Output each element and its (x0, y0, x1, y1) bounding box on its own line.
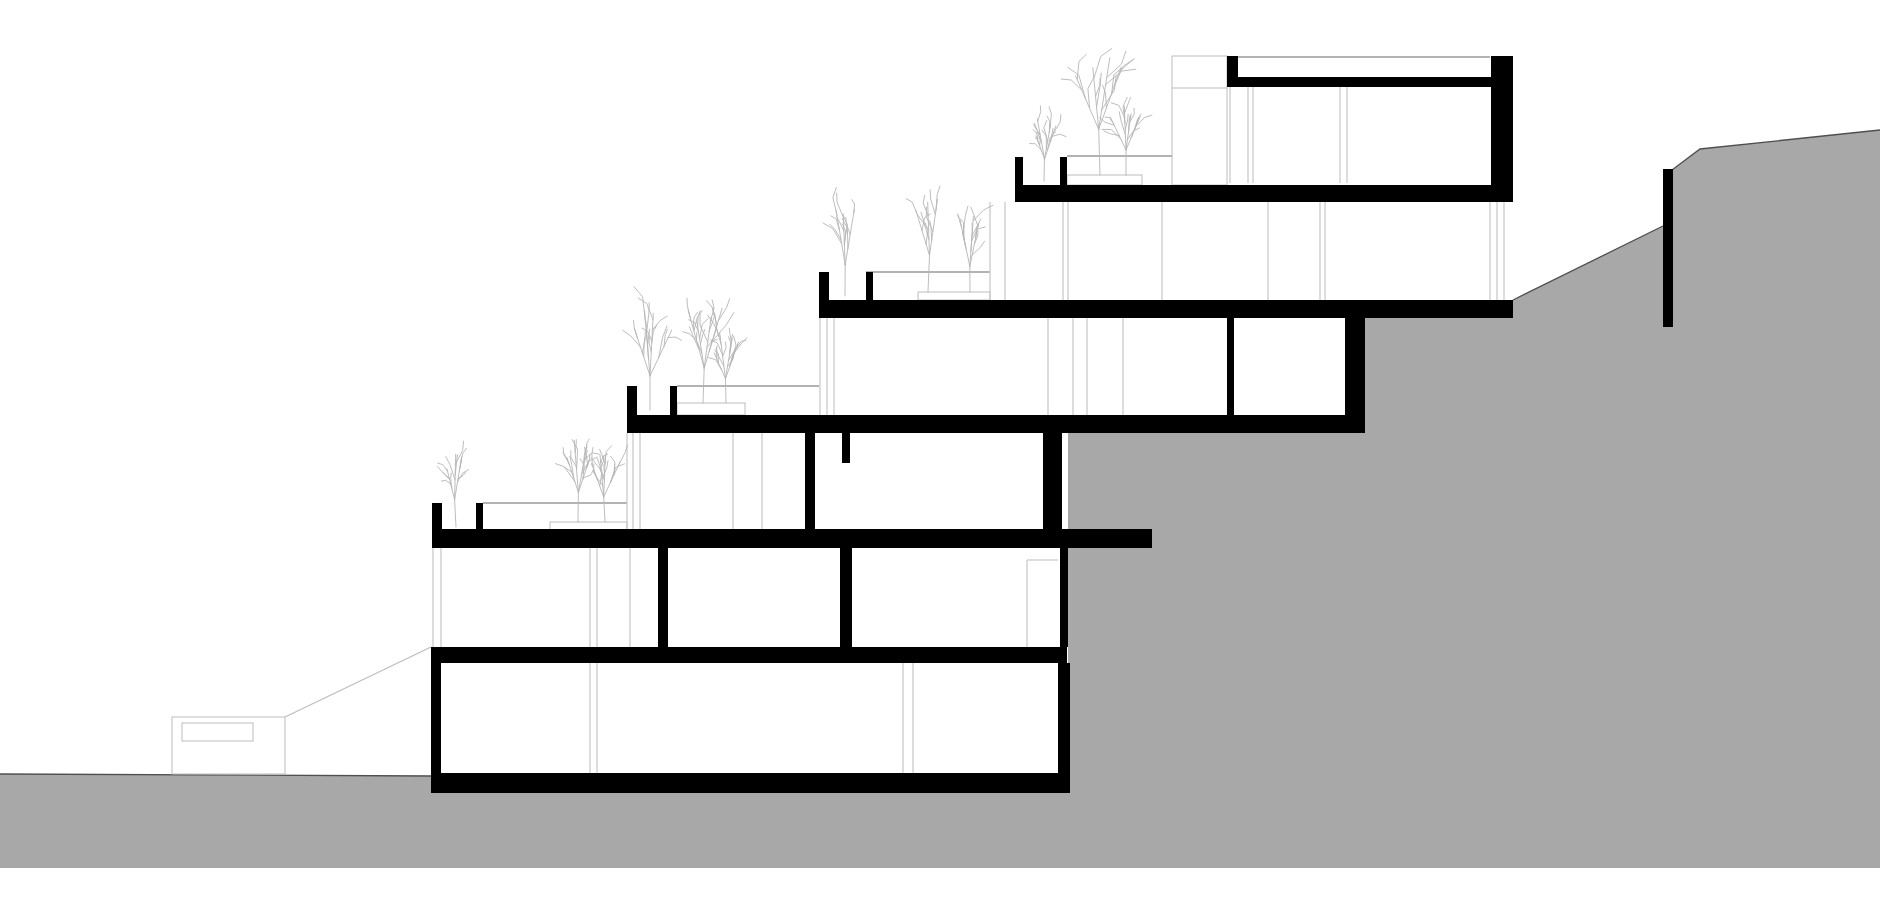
planting-bed-outline (550, 522, 627, 530)
level3-right-wall (1043, 433, 1062, 530)
stair-volume-outline (1172, 56, 1227, 185)
tree (683, 298, 734, 403)
slab-level-1 (1015, 185, 1513, 202)
tree (906, 186, 940, 292)
tree (958, 205, 993, 292)
tree (438, 441, 469, 527)
level2-right-wall (1345, 318, 1365, 415)
upper-unit-right-wall (1491, 56, 1513, 202)
level4-partition-wall-a (658, 548, 668, 647)
level3-beam (842, 433, 850, 463)
tree (708, 315, 747, 403)
ground-left-wall (431, 663, 441, 773)
planting-bed-outline (1067, 175, 1142, 185)
slab-level-2 (819, 300, 1513, 318)
tree (1100, 97, 1152, 175)
level2-partition-wall (1227, 318, 1234, 415)
planter-terrace-2-wall (866, 272, 873, 300)
planter-terrace-3-wall (627, 386, 637, 415)
planter-terrace-1-wall (1060, 157, 1067, 185)
planting-bed-outline (677, 403, 745, 415)
tree (591, 445, 627, 522)
slab-level-3 (627, 415, 1365, 433)
planter-terrace-1-wall (1015, 157, 1023, 185)
ground-right-wall (1058, 663, 1070, 773)
roof-parapet-stub (1227, 56, 1238, 87)
foundation-slab (431, 773, 1070, 793)
level4-right-wall (1060, 548, 1068, 647)
planter-terrace-3-wall (670, 386, 677, 415)
retaining-wall (1663, 169, 1673, 327)
slab-level-5 (431, 647, 1067, 663)
entrance-structure-outline (172, 717, 285, 774)
retaining-ramp-line (285, 647, 431, 717)
roof-slab (1227, 77, 1513, 87)
architectural-section-svg (0, 0, 1880, 907)
planter-terrace-4-wall (432, 503, 442, 530)
planting-bed-outline (918, 292, 990, 300)
planter-terrace-2-wall (819, 272, 829, 300)
slab-level-4 (432, 529, 1152, 548)
level3-partition-wall (805, 433, 815, 530)
level4-partition-wall-b (840, 548, 852, 647)
planter-terrace-4-wall (476, 503, 483, 530)
section-drawing-canvas (0, 0, 1880, 907)
